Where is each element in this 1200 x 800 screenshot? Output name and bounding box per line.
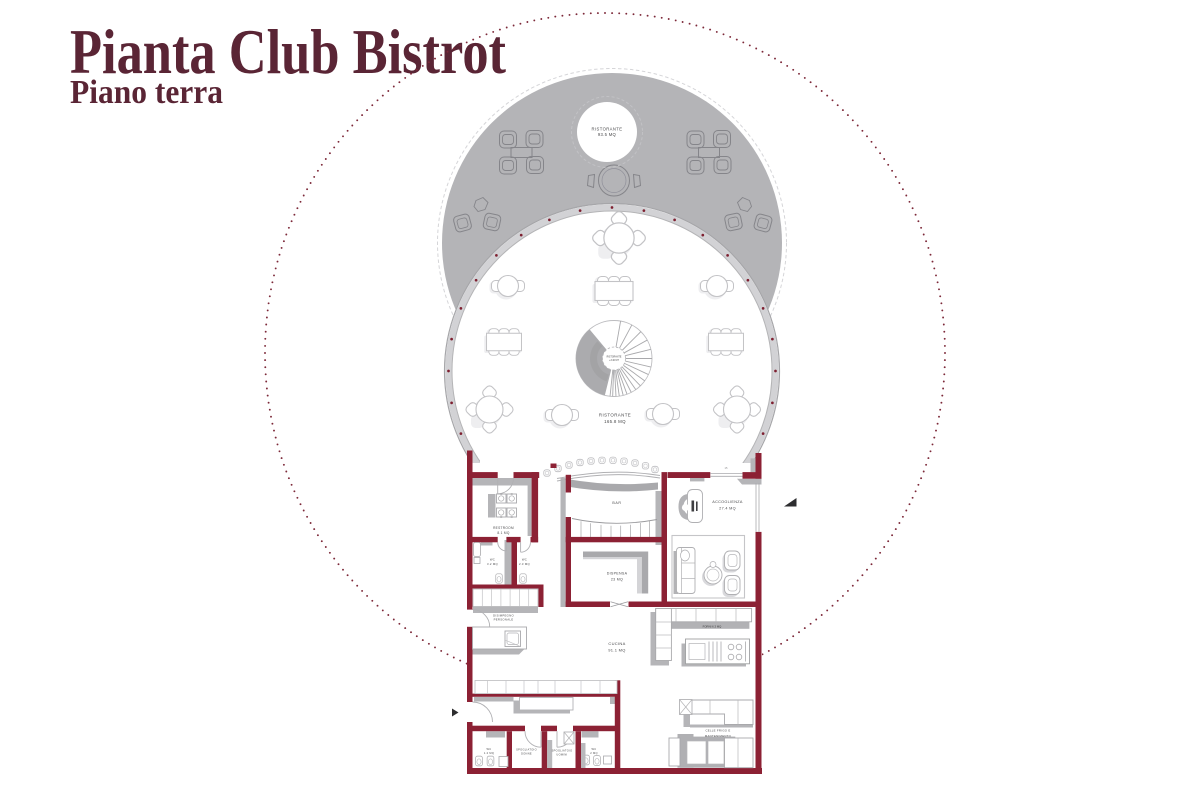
- svg-text:3.2 MQ: 3.2 MQ: [487, 562, 498, 566]
- svg-text:WC: WC: [490, 558, 495, 562]
- svg-text:RESTROOM: RESTROOM: [493, 526, 514, 530]
- svg-text:FORNI 6.3 MQ: FORNI 6.3 MQ: [703, 624, 722, 628]
- svg-text:WC: WC: [592, 747, 597, 751]
- svg-text:MANTENIMENTO: MANTENIMENTO: [705, 734, 732, 738]
- svg-text:BAR: BAR: [612, 501, 621, 505]
- svg-text:+3.40 MT: +3.40 MT: [609, 360, 619, 362]
- svg-text:DISPENSA: DISPENSA: [607, 572, 628, 576]
- svg-text:2 MQ: 2 MQ: [590, 751, 598, 755]
- svg-text:23 MQ: 23 MQ: [611, 578, 623, 582]
- svg-text:Piano terra: Piano terra: [70, 74, 223, 111]
- svg-text:165.8 MQ: 165.8 MQ: [604, 419, 626, 424]
- svg-text:93.5 MQ: 93.5 MQ: [598, 132, 617, 137]
- svg-text:UOMINI: UOMINI: [556, 753, 567, 757]
- svg-text:RISTORANTE: RISTORANTE: [592, 127, 623, 132]
- svg-text:SPOGLIATOIO: SPOGLIATOIO: [516, 748, 537, 752]
- svg-text:WC: WC: [487, 747, 492, 751]
- svg-text:DONNE: DONNE: [521, 752, 532, 756]
- svg-text:RISTORANTE: RISTORANTE: [607, 356, 622, 359]
- svg-text:SPOGLIATOIO: SPOGLIATOIO: [552, 749, 573, 753]
- svg-text:2.3 MQ: 2.3 MQ: [519, 562, 530, 566]
- svg-text:8.1 MQ: 8.1 MQ: [497, 531, 509, 535]
- svg-text:RISTORANTE: RISTORANTE: [599, 413, 631, 418]
- svg-text:CELLE FRIGO E: CELLE FRIGO E: [705, 729, 730, 733]
- svg-text:27.4 MQ: 27.4 MQ: [719, 507, 736, 511]
- svg-text:CUCINA: CUCINA: [608, 641, 625, 646]
- svg-text:91.1 MQ: 91.1 MQ: [608, 648, 625, 653]
- svg-text:WC: WC: [522, 558, 527, 562]
- svg-text:ACCOGLIENZA: ACCOGLIENZA: [712, 500, 743, 504]
- svg-text:PERSONALE: PERSONALE: [494, 618, 514, 622]
- svg-text:1.2 MQ: 1.2 MQ: [484, 751, 494, 755]
